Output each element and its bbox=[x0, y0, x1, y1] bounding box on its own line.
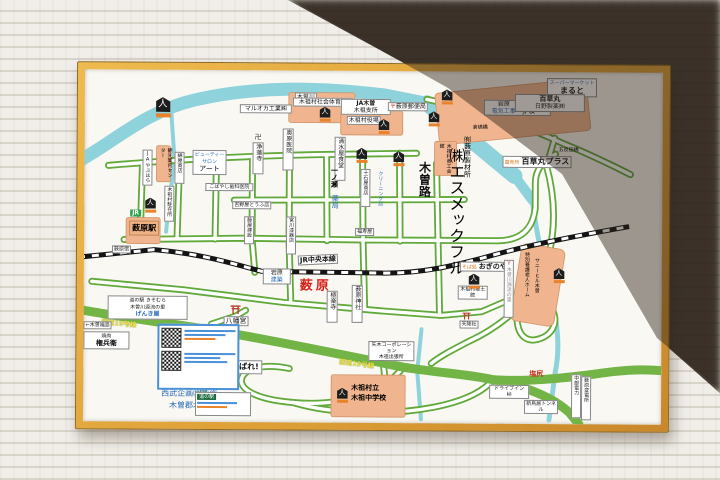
landmark-icon: 人 bbox=[144, 198, 156, 213]
map-label-temple: 極楽寺 bbox=[327, 291, 338, 323]
map-label-dentist: こばやし歯科医院 bbox=[205, 183, 253, 191]
map-board: 木曽川 マルオカ工業㈱ 奥原医院 卍 浄蓮寺 木祖村社会体育館 JA木曽木祖支所… bbox=[75, 61, 671, 433]
map-label-gonbee: 焼肉権兵衛 bbox=[83, 331, 129, 349]
map-label-nursing-home2: サニーヒル木曽 bbox=[534, 258, 541, 322]
map-label-oginoya: そば処 おぎのや bbox=[460, 262, 509, 273]
map-label-kisoji: 木曽路 bbox=[416, 161, 433, 197]
map-label-police: 木祖村駐在所 bbox=[164, 186, 174, 222]
map-label-yagi: 矢木コーポレーション木祖出張所 bbox=[368, 341, 414, 361]
map-label: ビューティーサロンアート bbox=[192, 150, 226, 175]
map-label: マルオカ工業㈱ bbox=[240, 104, 292, 114]
jr-logo: JR bbox=[130, 210, 141, 217]
map-label: JAやぶはら bbox=[142, 150, 152, 186]
map-label-hino-pharma: 百草丸日野製薬㈱ bbox=[515, 94, 585, 112]
map-label-drivein: ドライブイン峠 bbox=[489, 385, 529, 399]
map-label-shrine-small: 天降社 bbox=[460, 321, 479, 329]
bridge-label: 倉嶋橋 bbox=[473, 124, 488, 131]
map-label: 宮川漆器店 bbox=[286, 216, 296, 254]
map-label-village-office: 木祖村役場 bbox=[347, 116, 381, 125]
landmark-icon: 人 bbox=[441, 89, 453, 104]
map-label-nursing-home: 特別養護老人ホーム bbox=[524, 252, 531, 324]
map-label-tunnel: 新鳥居トンネル bbox=[524, 400, 558, 414]
map-label-hyakusogan-plus: 直売所 百草丸プラス bbox=[502, 156, 571, 168]
map-label: 藤屋建設 bbox=[244, 216, 254, 244]
landmark-icon: 人 bbox=[378, 119, 390, 134]
map-label-ja-kiso: JA木曽木祖支所 bbox=[341, 99, 391, 116]
map-label: 観光案内センター bbox=[159, 148, 173, 182]
qr-code bbox=[161, 351, 181, 371]
landmark-icon: 人 bbox=[553, 268, 565, 283]
map-label: 岩原建築 bbox=[263, 268, 291, 285]
map-surface: 木曽川 マルオカ工業㈱ 奥原医院 卍 浄蓮寺 木祖村社会体育館 JA木曽木祖支所… bbox=[83, 69, 663, 425]
landmark-icon: 人 bbox=[392, 151, 404, 166]
qr-ad-panel bbox=[157, 324, 239, 390]
map-label-michinoeki: 道の駅 きそむら木曽川源流の里げんき屋 bbox=[108, 295, 188, 319]
map-label: クリーニング店 bbox=[377, 171, 384, 209]
direction-label: ←木曽福島 bbox=[83, 321, 111, 329]
temple-manji-icon: 卍 bbox=[255, 132, 262, 142]
torii-icon bbox=[462, 312, 472, 320]
qr-code bbox=[161, 328, 181, 348]
landmark-icon: 人 bbox=[356, 148, 368, 163]
map-label-post-office: 〒薮原郵便局 bbox=[388, 102, 428, 111]
landmark-icon: 人 bbox=[428, 111, 440, 126]
map-label-shrine: 薮原神社 bbox=[352, 285, 363, 323]
map-label-pharmacy: 一ノ瀬 bbox=[329, 167, 339, 188]
map-label: 吉野屋とうふ店 bbox=[232, 201, 271, 209]
map-label-substation: 中部電力 bbox=[571, 374, 581, 418]
map-label-substation2: 薮原変電所 bbox=[581, 376, 591, 420]
direction-shiojiri: 塩尻 bbox=[529, 369, 543, 379]
map-label: 奥原医院 bbox=[282, 128, 293, 170]
map-label-yabuhara-station: 薮原駅 bbox=[129, 221, 159, 236]
map-label: 福寿屋 bbox=[355, 228, 374, 236]
landmark-icon: 人 bbox=[319, 107, 331, 122]
map-label-junior-high: 木祖村立木祖中学校 bbox=[351, 383, 386, 403]
map-label-michinoeki2: 道の駅 bbox=[195, 392, 251, 416]
torii-icon bbox=[230, 304, 242, 314]
map-label: 浄蓮寺 bbox=[252, 142, 263, 174]
map-label-pharmacy2: 薬局 bbox=[330, 195, 340, 209]
map-label-jr-chuo-line: JR中央本線 bbox=[298, 254, 338, 266]
map-label: 綿屋商店 bbox=[174, 152, 184, 184]
map-label-sawmill: ㈲薮原製材所 bbox=[462, 136, 472, 178]
bridge-label: 五反田橋 bbox=[559, 146, 579, 153]
landmark-icon: 人 bbox=[155, 97, 171, 117]
landmark-icon: 人 bbox=[336, 388, 348, 403]
map-label-monument: Y木曽川源流の里 bbox=[504, 260, 514, 318]
map-label: 薮原宿 bbox=[112, 245, 131, 253]
photo-of-map-signboard: 木曽川 マルオカ工業㈱ 奥原医院 卍 浄蓮寺 木祖村社会体育館 JA木曽木祖支所… bbox=[0, 0, 720, 480]
map-label: 十石屋商店 bbox=[360, 169, 370, 207]
landmark-icon: 人 bbox=[468, 274, 480, 289]
